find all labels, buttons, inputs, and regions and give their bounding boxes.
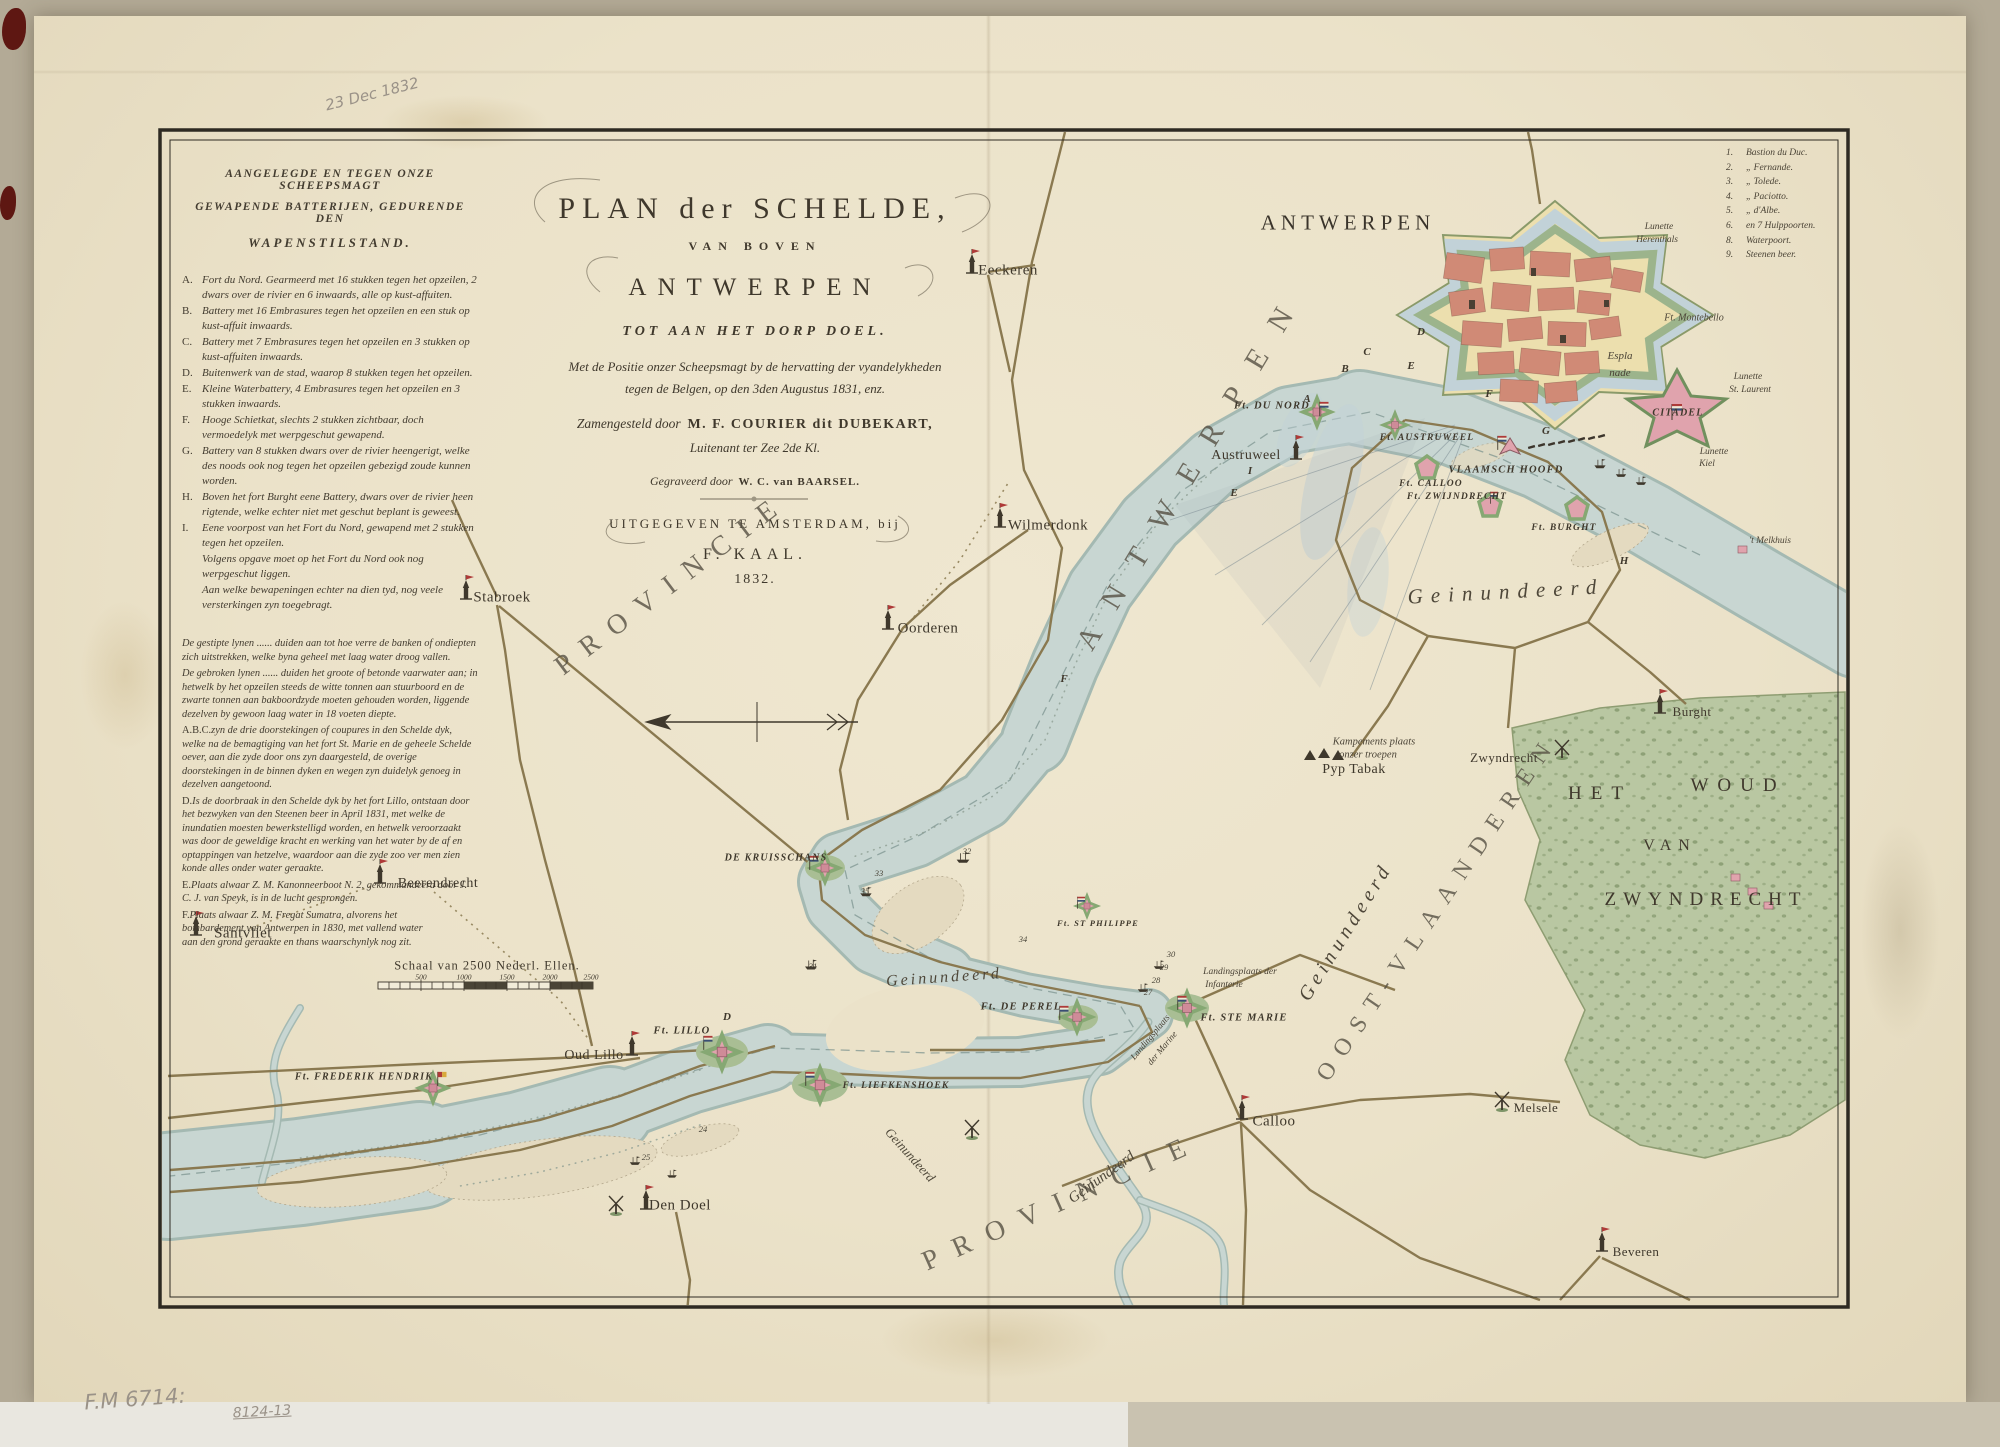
map-label-ft-zwijndrecht: Ft. ZWIJNDRECHT bbox=[1407, 492, 1507, 502]
map-label-de-kruisschans: DE KRUISSCHANS bbox=[725, 853, 828, 864]
map-title: PLAN der SCHELDE, bbox=[505, 192, 1005, 226]
map-label-g: G bbox=[1542, 425, 1550, 437]
map-label-geinundeerd: Geinundeerd bbox=[1407, 574, 1605, 609]
map-label-ft-du-nord: Ft. DU NORD bbox=[1234, 401, 1310, 412]
legend-item: 3.„ Tolede. bbox=[1726, 175, 1876, 190]
map-label-st-laurent: St. Laurent bbox=[1729, 385, 1771, 395]
map-label-32: 32 bbox=[963, 846, 972, 856]
map-label-burght: Burght bbox=[1673, 704, 1712, 720]
map-label-500: 500 bbox=[415, 973, 426, 982]
map-label-herenthals: Herenthals bbox=[1636, 235, 1678, 245]
publisher-name: F. KAAL. bbox=[505, 546, 1005, 564]
map-label-h: H bbox=[1620, 555, 1629, 567]
engraver-credit: Gegraveerd door W. C. van BAARSEL. bbox=[505, 474, 1005, 489]
map-label-antwerpen: ANTWERPEN bbox=[1070, 280, 1315, 657]
map-subtitle-3: TOT AAN HET DORP DOEL. bbox=[505, 324, 1005, 340]
legend-item: H.Boven het fort Burght eene Battery, dw… bbox=[182, 490, 478, 520]
map-label-zwyndrecht: ZWYNDRECHT bbox=[1605, 889, 1808, 911]
map-label-geinundeerd: Geinundeerd bbox=[882, 1125, 939, 1186]
map-label-van: VAN bbox=[1643, 837, 1697, 855]
legend-item: B.Battery met 16 Embrasures tegen het op… bbox=[182, 304, 478, 334]
map-label-e: E bbox=[1407, 360, 1414, 372]
map-label-d: D bbox=[723, 1011, 731, 1023]
map-label-c: C bbox=[1363, 346, 1370, 358]
legend-item: 8.Waterpoort. bbox=[1726, 234, 1876, 249]
map-label-geinundeerd: Geinundeerd bbox=[886, 965, 1003, 991]
legend-item: D.Buitenwerk van de stad, waarop 8 stukk… bbox=[182, 366, 478, 381]
map-label-beerendrecht: Beerendrecht bbox=[398, 876, 479, 892]
legend-item: 9.Steenen beer. bbox=[1726, 248, 1876, 263]
map-label-wilmerdonk: Wilmerdonk bbox=[1008, 518, 1088, 535]
map-label-t-melkhuis: 't Melkhuis bbox=[1749, 536, 1791, 546]
legend-item: F.Hooge Schietkat, slechts 2 stukken zic… bbox=[182, 413, 478, 443]
map-label-35: 35 bbox=[861, 886, 870, 896]
shelf-mark-secondary: 8124-13 bbox=[232, 1402, 291, 1421]
legend-item: G.Battery van 8 stukken dwars over de ri… bbox=[182, 444, 478, 489]
legend-item: 5.„ d'Albe. bbox=[1726, 204, 1876, 219]
legend-heading-1: AANGELEGDE EN TEGEN ONZE SCHEEPSMAGT bbox=[182, 168, 478, 192]
compiler-credit: Zamengesteld door M. F. COURIER dit DUBE… bbox=[505, 416, 1005, 433]
legend-item: Volgens opgave moet op het Fort du Nord … bbox=[182, 552, 478, 582]
map-label-onzer-troepen: onzer troepen bbox=[1339, 750, 1397, 761]
map-label-lunette: Lunette bbox=[1734, 372, 1763, 382]
map-label-woud: WOUD bbox=[1690, 775, 1785, 797]
legend-item: De gebroken lynen ...... duiden het groo… bbox=[182, 667, 478, 721]
map-label-ft-montebello: Ft. Montebello bbox=[1664, 313, 1723, 324]
map-subtitle-1: VAN BOVEN bbox=[505, 239, 1005, 254]
legend-item: D.Is de doorbraak in den Schelde dyk by … bbox=[182, 795, 478, 876]
map-label-33: 33 bbox=[875, 868, 884, 878]
legend-item: I.Eene voorpost van het Fort du Nord, ge… bbox=[182, 521, 478, 551]
map-label-zwyndrecht: Zwyndrecht bbox=[1470, 750, 1538, 766]
legend-item: De gestipte lynen ...... duiden aan tot … bbox=[182, 637, 478, 664]
map-label-i: I bbox=[1248, 465, 1252, 477]
map-label-27: 27 bbox=[1144, 987, 1153, 997]
map-label-28: 28 bbox=[1152, 975, 1161, 985]
legend-item: Aan welke bewapeningen echter na dien ty… bbox=[182, 583, 478, 613]
legend-item: 6.en 7 Hulppoorten. bbox=[1726, 219, 1876, 234]
map-label-34: 34 bbox=[1019, 934, 1028, 944]
map-label-lunette: Lunette bbox=[1700, 447, 1729, 457]
map-label-2500: 2500 bbox=[584, 973, 599, 982]
map-label-ft-lillo: Ft. LILLO bbox=[654, 1026, 711, 1037]
map-label-espla: Espla bbox=[1607, 350, 1632, 362]
map-label-oorderen: Oorderen bbox=[898, 621, 959, 638]
map-label-ft-calloo: Ft. CALLOO bbox=[1399, 479, 1463, 489]
map-label-a: A bbox=[1303, 393, 1310, 405]
map-label-f: F bbox=[1485, 388, 1492, 400]
map-label-25: 25 bbox=[642, 1152, 651, 1162]
map-label-ft-burght: Ft. BURGHT bbox=[1531, 523, 1596, 533]
map-label-den-doel: Den Doel bbox=[649, 1198, 711, 1215]
map-label-nade: nade bbox=[1609, 367, 1630, 379]
map-label-melsele: Melsele bbox=[1514, 1100, 1559, 1116]
legend-batteries: AANGELEGDE EN TEGEN ONZE SCHEEPSMAGT GEW… bbox=[182, 168, 478, 952]
map-description-1: Met de Positie onzer Scheepsmagt by de h… bbox=[505, 359, 1005, 375]
legend-battery-items: A.Fort du Nord. Gearmeerd met 16 stukken… bbox=[182, 273, 478, 613]
map-label-antwerpen: ANTWERPEN bbox=[1261, 211, 1436, 236]
map-subtitle-2: ANTWERPEN bbox=[505, 274, 1005, 302]
map-label-ft-ste-marie: Ft. STE MARIE bbox=[1200, 1013, 1287, 1024]
map-description-2: tegen de Belgen, op den 3den Augustus 18… bbox=[505, 381, 1005, 397]
map-label-24: 24 bbox=[699, 1124, 708, 1134]
legend-item: C.Battery met 7 Embrasures tegen het opz… bbox=[182, 335, 478, 365]
map-label-lunette: Lunette bbox=[1645, 222, 1674, 232]
map-label-kiel: Kiel bbox=[1699, 459, 1715, 469]
map-label-f: F bbox=[1060, 673, 1067, 685]
map-label-provincie: PROVINCIE bbox=[917, 1126, 1206, 1278]
map-label-landingsplaats-der: Landingsplaats der bbox=[1203, 967, 1277, 977]
map-label-stabroek: Stabroek bbox=[473, 590, 530, 607]
legend-item: 4.„ Paciotto. bbox=[1726, 190, 1876, 205]
publication-year: 1832. bbox=[505, 572, 1005, 588]
map-label-vlaamsch-hoofd: VLAAMSCH HOOFD bbox=[1448, 465, 1563, 476]
shelf-mark: F.M 6714: bbox=[84, 1383, 187, 1414]
map-label-eeckeren: Eeckeren bbox=[978, 263, 1038, 280]
map-label-31: 31 bbox=[809, 961, 818, 971]
map-label-d: D bbox=[1417, 326, 1425, 338]
legend-heading-3: WAPENSTILSTAND. bbox=[182, 235, 478, 251]
map-label-infanterie: Infanterie bbox=[1205, 980, 1242, 990]
legend-item: 1.Bastion du Duc. bbox=[1726, 146, 1876, 161]
map-label-ft-de-perel: Ft. DE PEREL bbox=[981, 1002, 1062, 1013]
legend-item: E.Kleine Waterbattery, 4 Embrasures tege… bbox=[182, 382, 478, 412]
map-label-calloo: Calloo bbox=[1253, 1114, 1296, 1131]
map-label-oud-lillo: Oud Lillo bbox=[564, 1048, 623, 1064]
map-label-30: 30 bbox=[1167, 949, 1176, 959]
map-label-santvliet: Santvliet bbox=[214, 926, 272, 943]
compiler-rank: Luitenant ter Zee 2de Kl. bbox=[505, 440, 1005, 456]
legend-bastions: 1.Bastion du Duc.2.„ Fernande.3.„ Tolede… bbox=[1726, 146, 1876, 263]
legend-item: A.Fort du Nord. Gearmeerd met 16 stukken… bbox=[182, 273, 478, 303]
legend-item: 2.„ Fernande. bbox=[1726, 161, 1876, 176]
map-label-kampements-plaats: Kampements plaats bbox=[1333, 737, 1416, 748]
legend-heading-2: GEWAPENDE BATTERIJEN, GEDURENDE DEN bbox=[182, 201, 478, 225]
map-label-het: HET bbox=[1568, 783, 1632, 805]
map-label-schaal-van-2500-nederl-ellen: Schaal van 2500 Nederl. Ellen. bbox=[394, 959, 580, 974]
map-label-ft-st-philippe: Ft. ST PHILIPPE bbox=[1057, 918, 1139, 928]
map-sheet: 23 Dec 1832 F.M 6714: 8124-13 PLAN der S… bbox=[0, 0, 2000, 1447]
map-label-2000: 2000 bbox=[543, 973, 558, 982]
map-label-ft-frederik-hendrik: Ft. FREDERIK HENDRIK bbox=[295, 1072, 433, 1083]
map-label-austruweel: Austruweel bbox=[1211, 448, 1281, 464]
map-label-ft-liefkenshoek: Ft. LIEFKENSHOEK bbox=[843, 1081, 950, 1091]
map-label-citadel: CITADEL bbox=[1652, 408, 1703, 419]
map-label-1000: 1000 bbox=[457, 973, 472, 982]
legend-notes: De gestipte lynen ...... duiden aan tot … bbox=[182, 637, 478, 949]
map-label-beveren: Beveren bbox=[1613, 1244, 1660, 1260]
map-label-ft-austruweel: Ft. AUSTRUWEEL bbox=[1380, 433, 1475, 443]
handwritten-date: 23 Dec 1832 bbox=[323, 74, 420, 115]
map-label-29: 29 bbox=[1160, 962, 1169, 972]
map-label-1500: 1500 bbox=[500, 973, 515, 982]
map-label-b: B bbox=[1341, 363, 1348, 375]
map-label-pyp-tabak: Pyp Tabak bbox=[1322, 762, 1386, 778]
legend-item: A.B.C.zyn de drie doorstekingen of coupu… bbox=[182, 724, 478, 792]
map-label-e: E bbox=[1230, 487, 1237, 499]
